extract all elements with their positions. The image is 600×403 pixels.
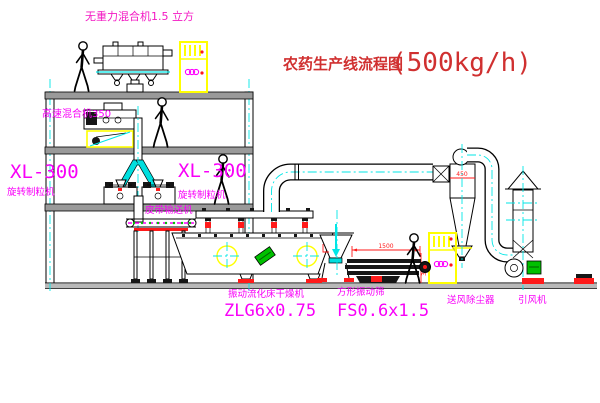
diagram-title-capacity: (500kg/h) [391, 48, 532, 78]
label-induced-fan: 引风机 [518, 294, 547, 306]
granulator-left [104, 180, 137, 204]
worker-figure-floor2 [154, 98, 168, 147]
control-cabinet-top [180, 42, 207, 92]
label-screen-name: 方形振动筛 [337, 286, 385, 298]
fan-base [522, 278, 544, 284]
rotary-valve [329, 258, 342, 263]
dryer-inlet-fittings [205, 218, 308, 233]
equipment-base-right [574, 274, 594, 284]
granulator-discharge-pipe [134, 196, 143, 222]
diagram-canvas: 450 [0, 0, 600, 403]
dryer-foot-left [238, 279, 254, 283]
indicator-light-icon [449, 237, 452, 240]
label-granulator-left-name: 旋转制粒机 [7, 186, 55, 198]
screen-length-text: 1500 [378, 243, 393, 250]
label-dust-collector: 送风除尘器 [447, 294, 495, 306]
duct-elbow [272, 164, 434, 213]
fan-housing [505, 259, 523, 277]
label-dryer-name: 振动流化床干燥机 [228, 288, 305, 300]
conveyor-bed [134, 228, 188, 231]
label-granulator-right-model: XL-300 [178, 160, 247, 182]
process-flow-diagram: 450 [0, 0, 600, 403]
label-high-speed-mixer: 高速混合机350 [42, 107, 111, 120]
conveyor-rollers [133, 222, 191, 224]
cyclone-barrel [450, 164, 475, 198]
cyclone-cone [450, 198, 475, 246]
ground-fill [45, 284, 597, 288]
label-gravity-mixer: 无重力混合机1.5 立方 [85, 9, 194, 23]
floor-beam-top [45, 92, 253, 99]
cyclone-outlet-elbow [453, 149, 469, 165]
worker-figure-ground [406, 234, 420, 283]
dryer-top-frame [196, 211, 313, 218]
cabinet-logo-icon [434, 261, 447, 266]
floor-beam-middle [45, 147, 253, 154]
label-dryer-model: ZLG6x0.75 [224, 301, 316, 321]
dryer-body [172, 233, 333, 274]
indicator-light-icon [200, 50, 203, 53]
diagram-title: 农药生产线流程图 [282, 55, 403, 73]
label-granulator-left-model: XL-300 [10, 161, 79, 183]
worker-figure-top-floor [75, 42, 89, 91]
label-belt-conveyor: 皮带输送机 [145, 204, 193, 216]
label-granulator-right-name: 旋转制粒机 [178, 189, 226, 201]
mixer-discharge-box [127, 84, 143, 92]
label-screen-model: FS0.6x1.5 [337, 301, 429, 321]
gravity-mixer [94, 42, 172, 92]
granulator-right [142, 180, 175, 204]
dust-collector-cabinet [429, 233, 456, 283]
induced-draft-fan [505, 259, 544, 284]
cabinet-logo-icon [185, 69, 198, 74]
